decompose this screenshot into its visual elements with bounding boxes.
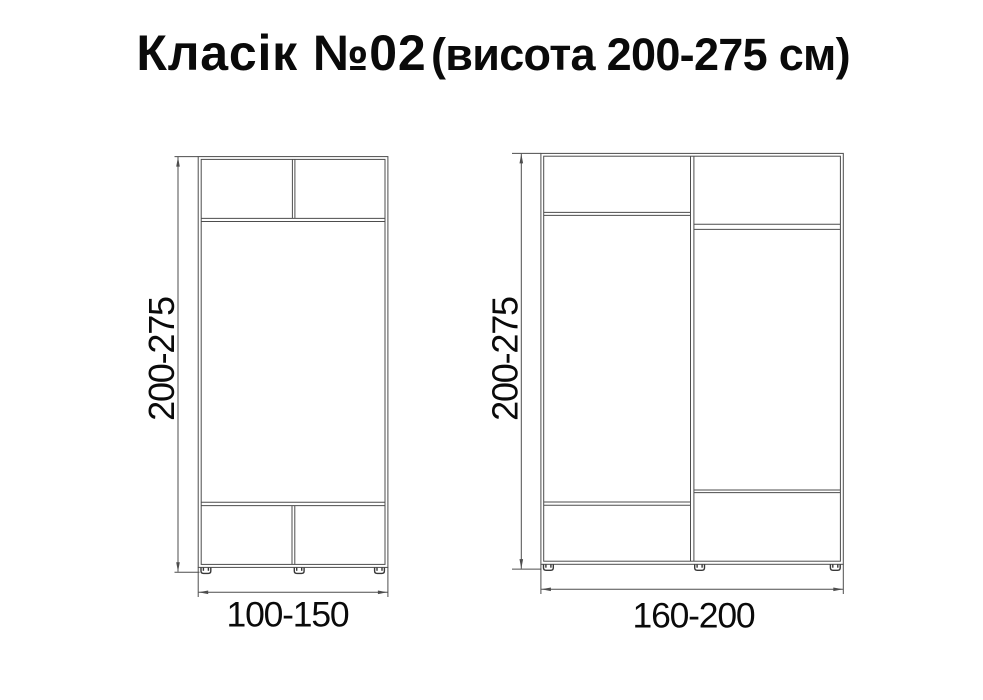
svg-text:200-275: 200-275 <box>141 297 182 421</box>
svg-text:(висота 200-275 см): (висота 200-275 см) <box>431 29 850 80</box>
svg-text:200-275: 200-275 <box>484 297 525 421</box>
svg-text:Класік №02: Класік №02 <box>136 25 426 81</box>
svg-text:100-150: 100-150 <box>227 594 349 634</box>
svg-text:160-200: 160-200 <box>633 595 755 635</box>
